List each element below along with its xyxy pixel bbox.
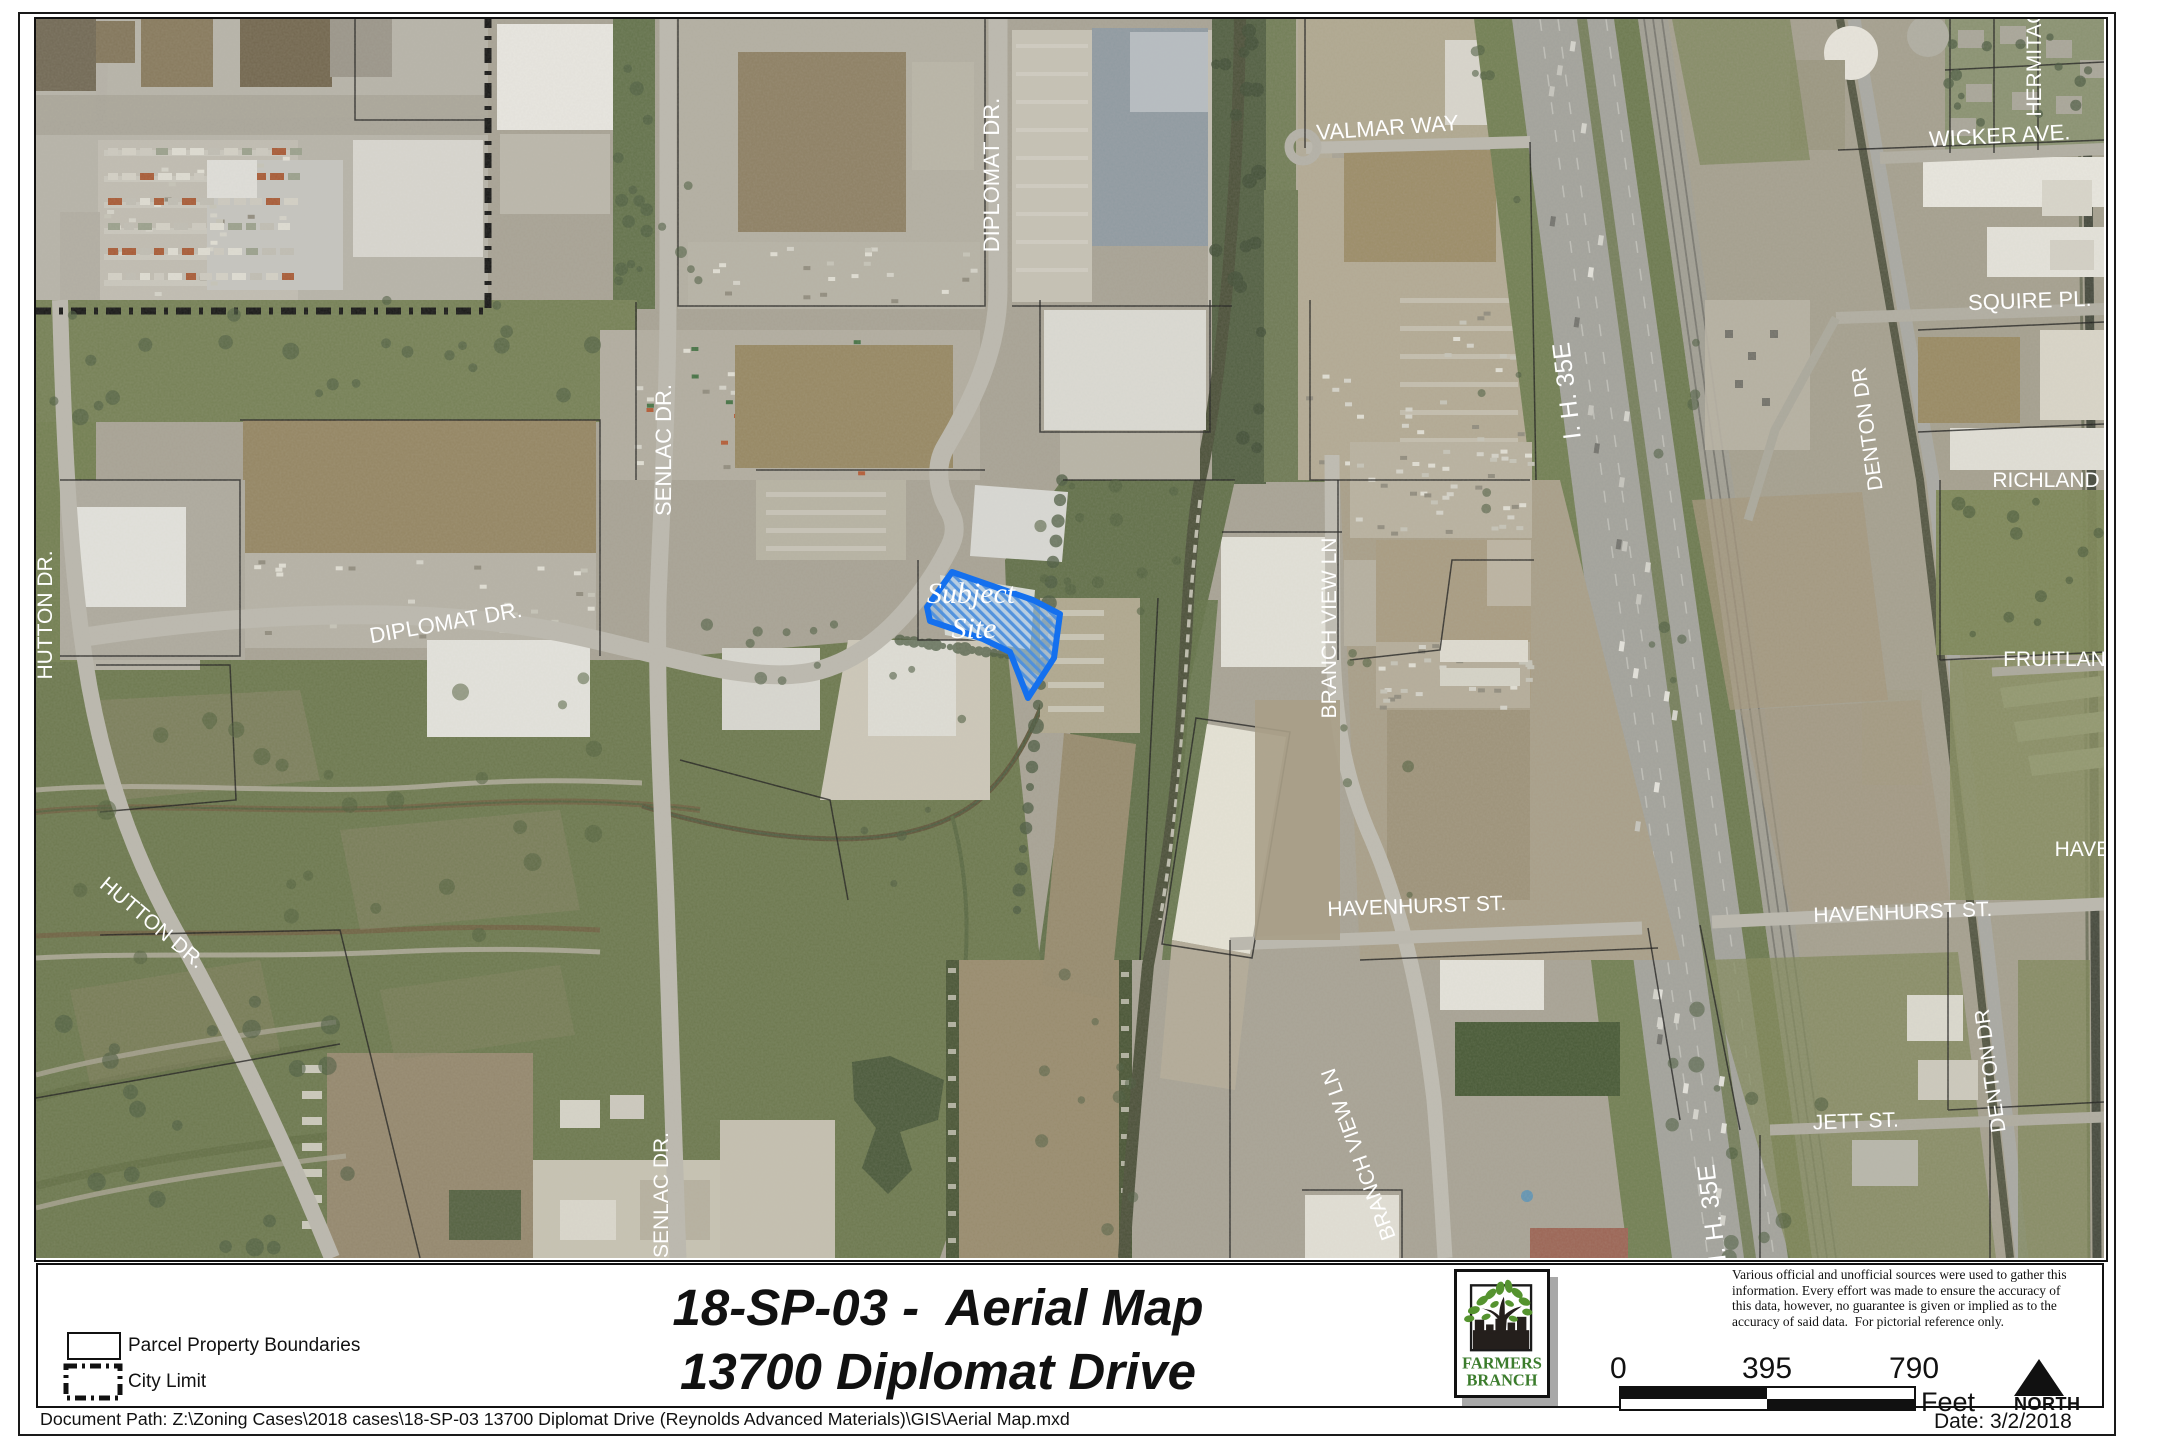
svg-text:SQUIRE PL.: SQUIRE PL.: [1968, 286, 2092, 315]
svg-text:FRUITLAND: FRUITLAND: [2003, 648, 2104, 671]
svg-text:BRANCH: BRANCH: [1466, 1370, 1537, 1389]
svg-text:DIPLOMAT DR.: DIPLOMAT DR.: [979, 98, 1004, 252]
svg-text:RICHLAND: RICHLAND: [1992, 469, 2099, 492]
svg-text:Site: Site: [952, 612, 997, 645]
svg-text:JETT ST.: JETT ST.: [1812, 1109, 1899, 1135]
svg-text:HERMITAG: HERMITAG: [2023, 19, 2046, 117]
svg-text:HAVEN: HAVEN: [2055, 838, 2104, 861]
svg-text:Subject: Subject: [927, 577, 1016, 610]
svg-text:SENLAC DR.: SENLAC DR.: [650, 1132, 673, 1258]
svg-text:SENLAC DR.: SENLAC DR.: [651, 384, 676, 516]
svg-text:HUTTON DR.: HUTTON DR.: [36, 550, 57, 679]
svg-text:BRANCH VIEW LN: BRANCH VIEW LN: [1318, 538, 1341, 719]
